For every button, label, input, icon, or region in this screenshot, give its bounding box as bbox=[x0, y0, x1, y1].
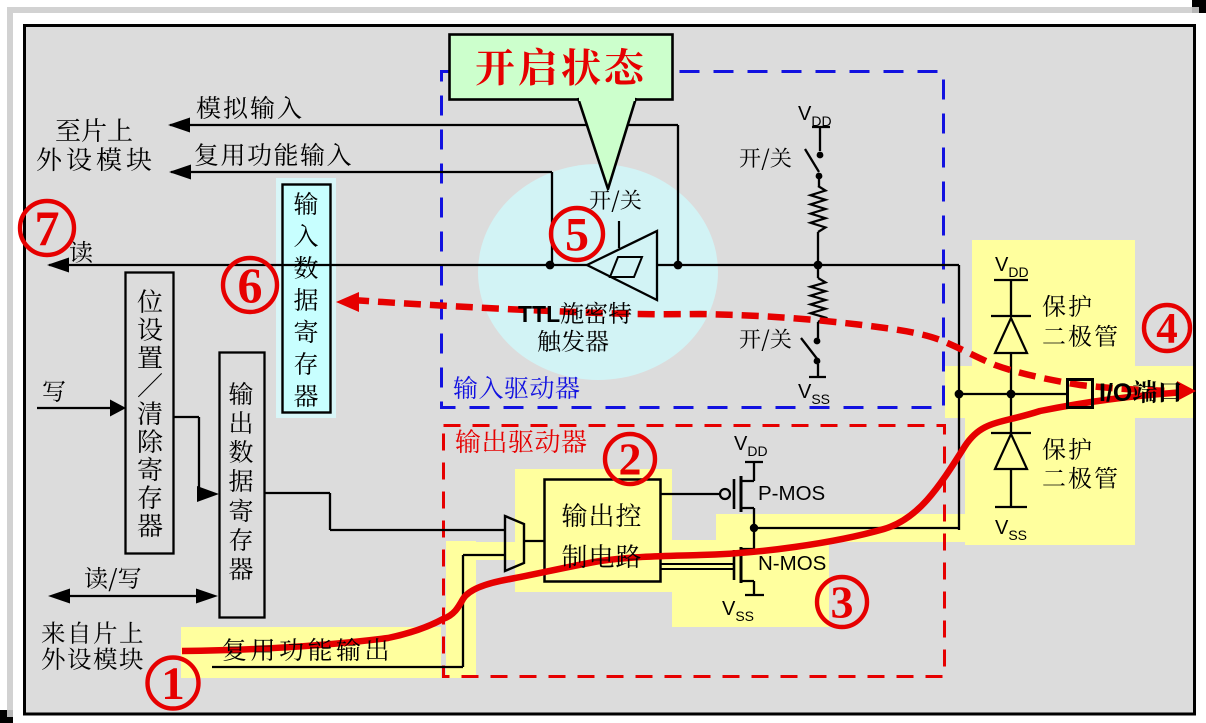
svg-text:N-MOS: N-MOS bbox=[758, 552, 826, 575]
svg-text:二极管: 二极管 bbox=[1042, 459, 1120, 494]
svg-text:据: 据 bbox=[293, 281, 318, 317]
svg-text:复用功能输入: 复用功能输入 bbox=[194, 136, 353, 172]
svg-text:触发器: 触发器 bbox=[537, 322, 609, 357]
svg-text:输出控: 输出控 bbox=[561, 496, 642, 533]
svg-text:7: 7 bbox=[35, 200, 60, 256]
svg-text:4: 4 bbox=[1156, 306, 1178, 353]
svg-text:入: 入 bbox=[293, 217, 318, 253]
svg-text:2: 2 bbox=[619, 434, 642, 485]
svg-text:开/关: 开/关 bbox=[589, 184, 642, 215]
svg-text:6: 6 bbox=[238, 257, 263, 313]
svg-text:器: 器 bbox=[137, 506, 163, 543]
svg-text:开启状态: 开启状态 bbox=[475, 37, 647, 94]
svg-text:开/关: 开/关 bbox=[739, 142, 792, 173]
svg-text:输入驱动器: 输入驱动器 bbox=[453, 369, 581, 405]
svg-text:输: 输 bbox=[293, 185, 318, 221]
svg-text:模拟输入: 模拟输入 bbox=[196, 89, 304, 125]
svg-text:二极管: 二极管 bbox=[1042, 317, 1120, 352]
svg-text:开/关: 开/关 bbox=[739, 323, 792, 354]
svg-text:外设模块: 外设模块 bbox=[41, 641, 145, 676]
svg-text:复用功能输出: 复用功能输出 bbox=[222, 631, 393, 667]
svg-text:存: 存 bbox=[293, 345, 318, 381]
svg-text:I/O端口: I/O端口 bbox=[1099, 373, 1182, 409]
svg-text:读/写: 读/写 bbox=[84, 559, 142, 594]
svg-text:输出驱动器: 输出驱动器 bbox=[455, 422, 588, 459]
svg-text:5: 5 bbox=[565, 208, 589, 261]
svg-text:数: 数 bbox=[293, 249, 318, 285]
svg-text:3: 3 bbox=[831, 577, 854, 628]
svg-text:外设模块: 外设模块 bbox=[36, 140, 156, 177]
svg-text:写: 写 bbox=[42, 372, 66, 407]
svg-text:P-MOS: P-MOS bbox=[758, 482, 825, 505]
svg-text:器: 器 bbox=[228, 550, 253, 586]
svg-text:1: 1 bbox=[161, 658, 185, 710]
svg-text:寄: 寄 bbox=[293, 313, 318, 349]
svg-text:器: 器 bbox=[293, 377, 318, 413]
svg-text:制电路: 制电路 bbox=[561, 537, 642, 574]
